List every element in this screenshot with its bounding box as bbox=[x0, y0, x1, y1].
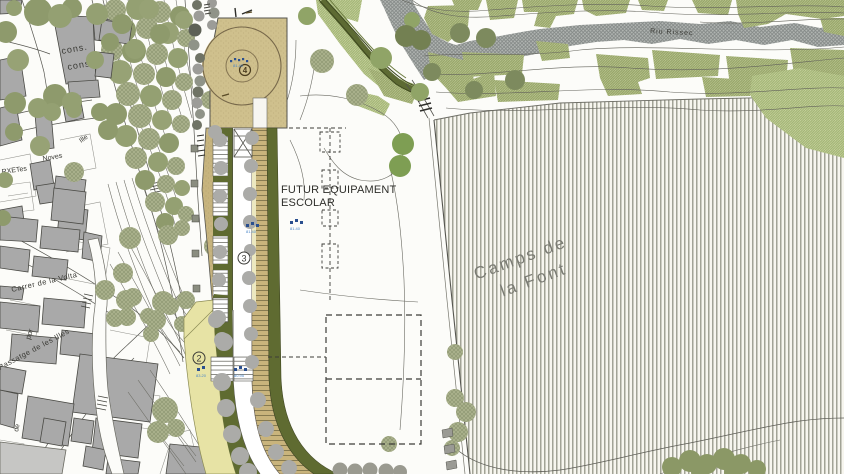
svg-text:ESCOLAR: ESCOLAR bbox=[281, 197, 335, 209]
svg-text:81.40: 81.40 bbox=[290, 226, 301, 231]
svg-text:2: 2 bbox=[196, 354, 201, 364]
svg-text:81.40: 81.40 bbox=[246, 229, 257, 234]
svg-text:81.40: 81.40 bbox=[233, 63, 244, 68]
svg-text:83.20: 83.20 bbox=[196, 373, 207, 378]
svg-text:80.95: 80.95 bbox=[234, 373, 245, 378]
svg-text:3: 3 bbox=[241, 254, 246, 264]
svg-text:FUTUR EQUIPAMENT: FUTUR EQUIPAMENT bbox=[281, 184, 397, 196]
svg-text:4: 4 bbox=[243, 66, 248, 75]
